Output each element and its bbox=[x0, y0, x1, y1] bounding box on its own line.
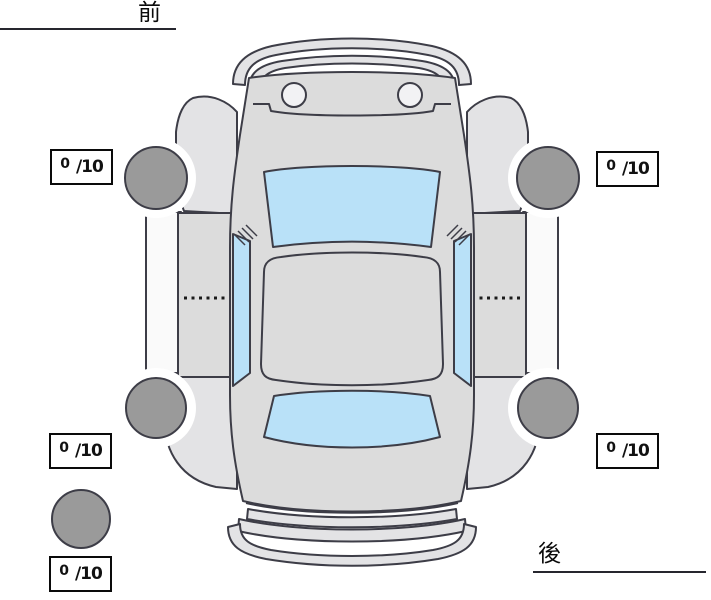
score-box-rear-right: 0 /10 bbox=[596, 433, 659, 469]
car-top-view bbox=[0, 0, 711, 600]
score-max: /10 bbox=[76, 157, 103, 177]
score-max: /10 bbox=[622, 441, 649, 461]
front-underline bbox=[0, 28, 176, 30]
side-sill bbox=[146, 212, 181, 373]
score-box-front-right: 0 /10 bbox=[596, 151, 659, 187]
score-value: 0 bbox=[59, 440, 69, 456]
rear-label: 後 bbox=[538, 542, 561, 567]
roof bbox=[261, 253, 443, 386]
door-panel bbox=[178, 213, 237, 377]
car-inspection-diagram: 前 後 0 /10 0 /10 0 /10 0 /10 0 /10 bbox=[0, 0, 711, 600]
tire-spare bbox=[52, 490, 110, 548]
rear-underline bbox=[533, 571, 706, 573]
tire-front-left bbox=[125, 147, 187, 209]
score-max: /10 bbox=[75, 441, 102, 461]
score-max: /10 bbox=[622, 159, 649, 179]
score-value: 0 bbox=[60, 156, 70, 172]
score-value: 0 bbox=[59, 563, 69, 579]
windshield bbox=[264, 166, 440, 247]
score-value: 0 bbox=[606, 440, 616, 456]
tire-rear-left bbox=[126, 378, 186, 438]
tire-rear-right bbox=[518, 378, 578, 438]
score-box-front-left: 0 /10 bbox=[50, 149, 113, 185]
rear-window bbox=[264, 391, 440, 448]
side-window bbox=[233, 234, 250, 386]
score-value: 0 bbox=[606, 158, 616, 174]
score-box-rear-left: 0 /10 bbox=[49, 433, 112, 469]
front-label: 前 bbox=[138, 1, 161, 26]
score-max: /10 bbox=[75, 564, 102, 584]
headlight-left bbox=[282, 83, 306, 107]
tire-front-right bbox=[517, 147, 579, 209]
headlight-right bbox=[398, 83, 422, 107]
score-box-spare: 0 /10 bbox=[49, 556, 112, 592]
